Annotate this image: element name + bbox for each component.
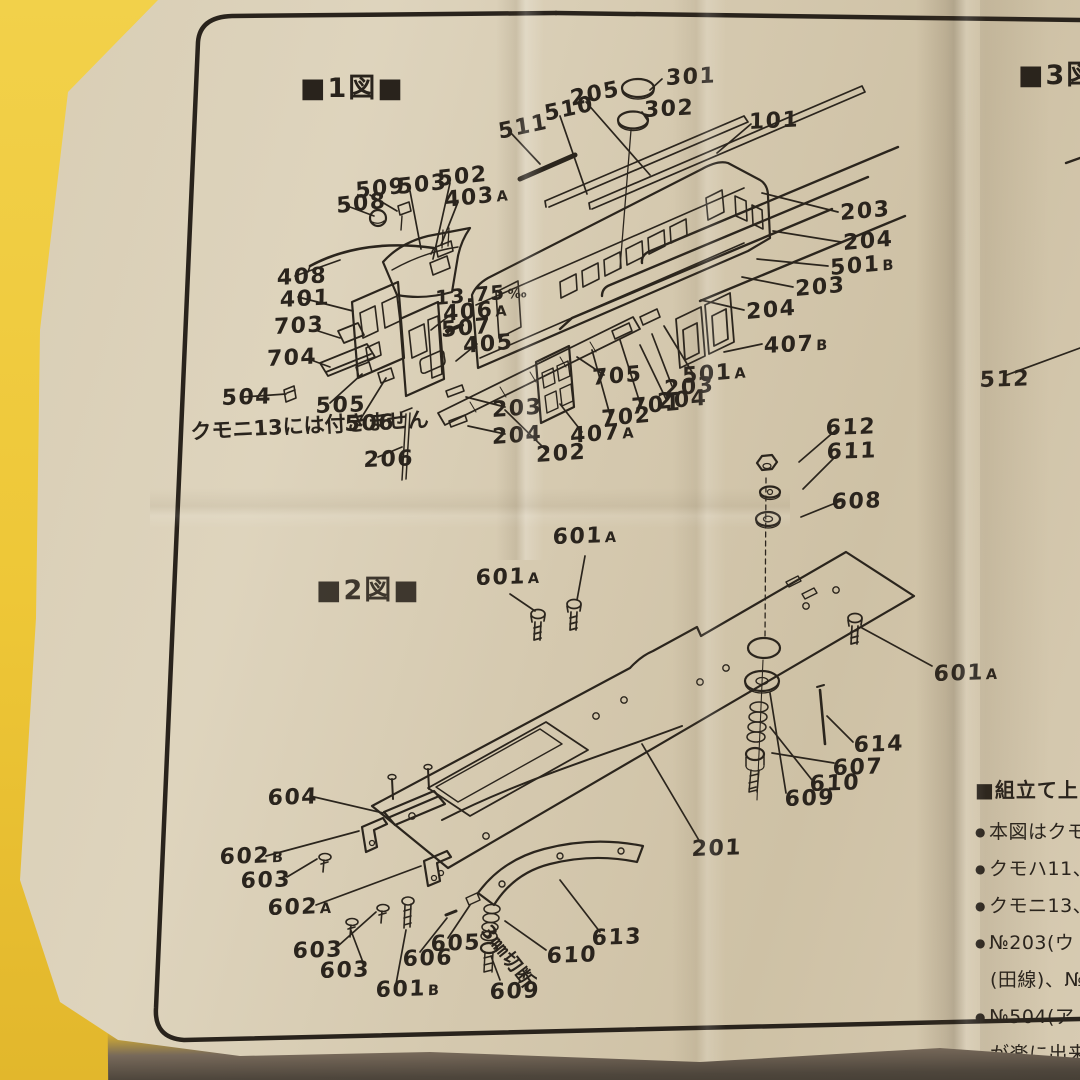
part-labels-layer: 511510205301302101508509503502403A203204… [0,0,1080,1080]
part-label: 601A [475,566,539,590]
part-label: 601A [933,662,997,686]
assembly-note-line: ●クモニ13、 [975,891,1080,918]
part-label: 601A [552,525,616,549]
part-label: 603 [240,869,291,893]
part-label: 602B [219,845,283,869]
part-label: 611 [826,440,877,464]
assembly-note-line: ●№203(ウ [975,928,1080,955]
assembly-notes-heading: ■組立て上の [975,774,1080,803]
part-label: 606 [402,947,453,971]
part-label: 601B [375,978,439,1002]
part-label: 201 [691,837,742,861]
photo-scene: ■1図■ ■2図■ ■3図 51151020530130210150850950… [0,0,1080,1080]
part-label: 705 [592,364,643,390]
part-label: 206 [363,448,414,472]
part-label: 603 [319,959,370,983]
part-label: 204 [746,298,797,324]
part-label: 704 [267,346,318,371]
part-label: 610 [546,944,597,968]
part-label: 302 [644,97,695,122]
part-label: 204 [843,229,894,255]
part-label: 511 [497,112,549,144]
part-label: 609 [784,787,835,811]
part-label: 703 [274,314,325,339]
part-label: 405 [463,332,514,358]
assembly-note-line: (田線)、№ [975,965,1080,992]
part-label: 203 [492,396,542,422]
assembly-note-line: ●クモハ11、 [975,854,1080,881]
part-label: 613 [591,926,642,950]
part-label: 205 [569,79,621,111]
assembly-note-line: ●№504(ア [975,1002,1080,1029]
part-label: 604 [267,786,318,810]
part-label: 602A [267,896,331,920]
part-label: 202 [536,441,586,467]
part-label: 608 [831,490,882,514]
assembly-notes-list: ●本図はクモニ●クモハ11、●クモニ13、●№203(ウ(田線)、№●№504(… [975,817,1080,1066]
part-label: 203 [840,199,891,225]
part-label: 203 [795,275,846,301]
assembly-notes-panel: ■組立て上の ●本図はクモニ●クモハ11、●クモニ13、●№203(ウ(田線)、… [975,774,1080,1076]
part-label: 504 [221,386,272,410]
part-label: 612 [825,416,876,440]
part-label: 401 [280,287,331,312]
instruction-sheet: ■1図■ ■2図■ ■3図 51151020530130210150850950… [0,0,1080,1080]
assembly-note-line: ●本図はクモニ [975,817,1080,844]
part-label: 407B [764,333,828,358]
part-label: 512 [979,368,1030,392]
part-label: 403A [444,183,508,212]
part-label: 101 [749,109,800,134]
part-label: 204 [492,423,542,449]
part-label: 301 [666,65,717,90]
